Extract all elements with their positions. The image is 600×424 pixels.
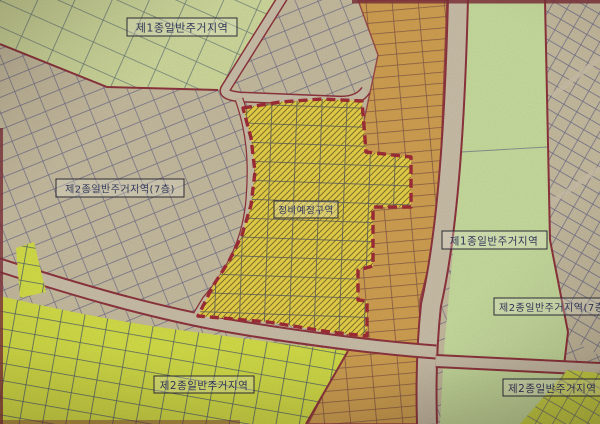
photo-grain	[0, 0, 600, 424]
zoning-map-photo: 제1종일반주거지역 제2종일반주거지역(7층) 정비예정구역 제1종일반주거지역…	[0, 0, 600, 424]
